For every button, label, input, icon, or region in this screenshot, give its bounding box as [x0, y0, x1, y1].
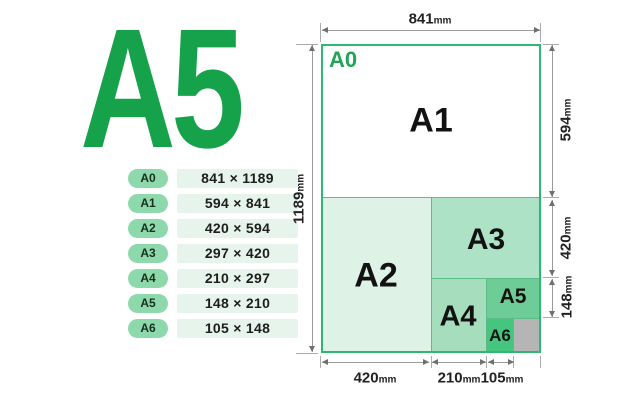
table-row-a2: A2 420 × 594	[128, 219, 298, 238]
dim-line-bottom-105	[488, 362, 514, 363]
table-row-a6: A6 105 × 148	[128, 319, 298, 338]
dim-value: 841	[409, 11, 434, 28]
dim-value: 594	[558, 116, 575, 141]
size-value: 210 × 297	[177, 269, 298, 288]
size-pill: A3	[128, 244, 168, 263]
dim-unit: mm	[563, 99, 574, 117]
region-label-a5: A5	[500, 285, 527, 309]
dim-label-841: 841mm	[409, 11, 452, 28]
dim-unit: mm	[379, 375, 397, 386]
extension-line	[540, 356, 541, 368]
region-label-a2: A2	[354, 257, 397, 296]
size-value: 594 × 841	[177, 194, 298, 213]
extension-line	[320, 23, 321, 42]
size-pill: A4	[128, 269, 168, 288]
dim-line-bottom-420	[322, 362, 429, 363]
table-row-a3: A3 297 × 420	[128, 244, 298, 263]
table-row-a5: A5 148 × 210	[128, 294, 298, 313]
size-pill: A1	[128, 194, 168, 213]
dim-unit: mm	[563, 217, 574, 235]
size-value: 148 × 210	[177, 294, 298, 313]
size-value: 841 × 1189	[177, 169, 298, 188]
sheet-label-a0: A0	[329, 47, 357, 73]
extension-line	[486, 356, 487, 368]
extension-line	[543, 197, 559, 198]
table-row-a4: A4 210 × 297	[128, 269, 298, 288]
size-pill: A0	[128, 169, 168, 188]
dim-value: 210	[438, 370, 463, 387]
size-pill: A2	[128, 219, 168, 238]
dim-value: 420	[558, 234, 575, 259]
size-value: 297 × 420	[177, 244, 298, 263]
extension-line	[543, 277, 559, 278]
dim-label-420-bottom: 420mm	[354, 370, 397, 387]
dim-label-420-right: 420mm	[558, 217, 575, 260]
extension-line	[296, 353, 318, 354]
extension-line	[540, 23, 541, 42]
size-value: 420 × 594	[177, 219, 298, 238]
dim-unit: mm	[506, 375, 524, 386]
dim-line-bottom-210	[432, 362, 486, 363]
size-pill: A5	[128, 294, 168, 313]
region-label-a6: A6	[489, 326, 511, 346]
hero-a5-text: A5	[80, 4, 240, 174]
dim-line-right-420	[552, 200, 553, 276]
extension-line	[320, 356, 321, 368]
extension-line	[543, 317, 559, 318]
dim-label-1189: 1189mm	[291, 174, 308, 224]
size-table: A0 841 × 1189 A1 594 × 841 A2 420 × 594 …	[128, 169, 298, 344]
dim-line-left-1189	[312, 45, 313, 352]
dim-label-594: 594mm	[558, 99, 575, 142]
dim-line-right-594	[552, 45, 553, 197]
dim-label-105: 105mm	[481, 370, 524, 387]
dim-label-210: 210mm	[438, 370, 481, 387]
region-label-a3: A3	[467, 223, 505, 257]
table-row-a0: A0 841 × 1189	[128, 169, 298, 188]
dim-value: 1189	[291, 192, 308, 225]
dim-unit: mm	[296, 174, 307, 192]
region-label-a1: A1	[409, 102, 452, 141]
paper-sizes-infographic: A5 A0 841 × 1189 A1 594 × 841 A2 420 × 5…	[0, 0, 640, 400]
dim-unit: mm	[463, 375, 481, 386]
size-value: 105 × 148	[177, 319, 298, 338]
table-row-a1: A1 594 × 841	[128, 194, 298, 213]
dim-line-right-148	[552, 279, 553, 317]
size-pill: A6	[128, 319, 168, 338]
dim-value: 420	[354, 370, 379, 387]
dim-label-148: 148mm	[559, 276, 576, 319]
dim-value: 105	[481, 370, 506, 387]
dim-value: 148	[559, 293, 576, 318]
region-label-a4: A4	[439, 301, 476, 334]
dim-unit: mm	[434, 16, 452, 27]
dim-unit: mm	[564, 276, 575, 294]
dim-line-top-841	[322, 30, 540, 31]
